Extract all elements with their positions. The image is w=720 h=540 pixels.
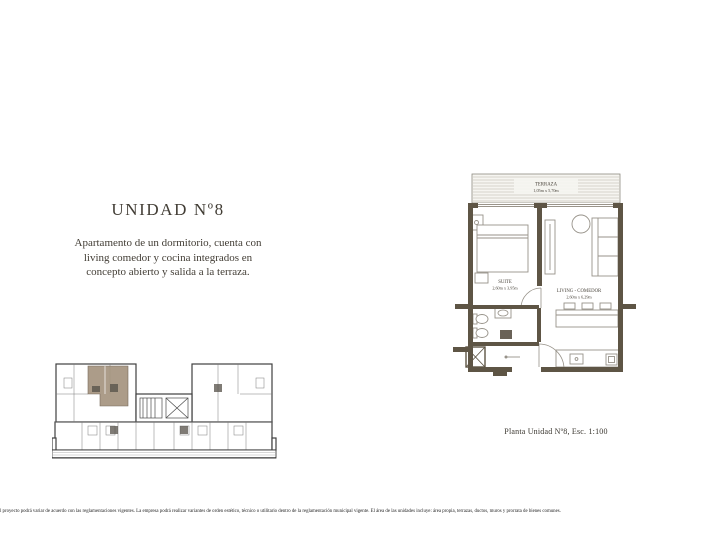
brochure-page: UNIDAD Nº8 Apartamento de un dormitorio,…: [0, 0, 720, 540]
unit-floor-plan-drawing: TERRAZA 1,05m x 5,70m: [448, 158, 663, 428]
legal-disclaimer: l proyecto podrá variar de acuerdo con l…: [0, 508, 720, 514]
terrace: TERRAZA 1,05m x 5,70m: [472, 174, 620, 203]
unit-title: UNIDAD Nº8: [55, 200, 281, 220]
wall-stub-left-1: [455, 304, 468, 309]
wall-stub-right: [623, 304, 636, 309]
building-outline: [52, 364, 276, 450]
bathroom-bottom-wall: [473, 342, 539, 346]
unit-floor-plan: TERRAZA 1,05m x 5,70m: [448, 158, 663, 428]
bathroom-right-wall: [537, 308, 541, 342]
building-overview-plan: [52, 358, 280, 464]
unit-description-line: Apartamento de un dormitorio, cuenta con: [55, 236, 281, 251]
unit-description-line: concepto abierto y salida a la terraza.: [55, 265, 281, 280]
stool: [564, 303, 575, 309]
living-label: LIVING - COMEDOR: [557, 289, 602, 294]
bed: [477, 225, 528, 272]
sofa: [592, 218, 618, 276]
dining-table: [572, 215, 590, 233]
shower-door: [500, 330, 512, 339]
toilet: [476, 315, 488, 324]
suite-label: SUITE: [498, 280, 512, 285]
plan-caption: Planta Unidad Nº8, Esc. 1:100: [448, 427, 664, 436]
bottom-wall-right: [541, 367, 623, 372]
unit-description: Apartamento de un dormitorio, cuenta con…: [55, 236, 281, 280]
unit-description-block: UNIDAD Nº8 Apartamento de un dormitorio,…: [55, 200, 281, 280]
building-overview-drawing: [52, 358, 280, 464]
right-wall: [618, 203, 623, 372]
wall-stub-bottom: [493, 372, 507, 376]
overview-terrace-strip: [52, 450, 276, 458]
bath-sink: [495, 308, 511, 318]
bidet: [476, 329, 488, 338]
lamp-icon: [475, 221, 479, 225]
terrace-label: TERRAZA: [535, 183, 558, 188]
nightstand: [475, 273, 488, 283]
divider-wall: [537, 208, 542, 286]
stool: [582, 303, 593, 309]
stool: [600, 303, 611, 309]
wall-stub-left-2: [453, 347, 468, 352]
bathroom-top-wall: [473, 305, 539, 309]
bottom-wall-left: [468, 367, 512, 372]
unit-description-line: living comedor y cocina integrados en: [55, 251, 281, 266]
kitchen-island: [556, 310, 618, 327]
left-wall: [468, 203, 473, 372]
